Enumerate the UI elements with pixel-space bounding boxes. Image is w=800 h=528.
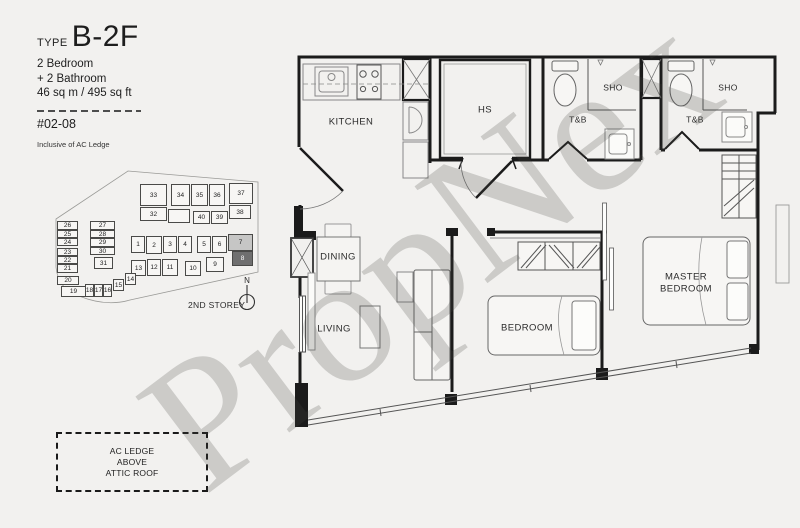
- keyplan-unit-18: 18: [85, 284, 94, 297]
- keyplan-unit-2: 2: [146, 236, 162, 254]
- floorplan-page: TYPE B-2F 2 Bedroom + 2 Bathroom 46 sq m…: [0, 0, 800, 528]
- room-label-dining: DINING: [320, 251, 356, 263]
- keyplan-unit-27: 27: [90, 221, 115, 230]
- ac-ledge-line: AC LEDGE: [110, 446, 155, 457]
- keyplan-unit-24: 24: [57, 238, 78, 246]
- keyplan-unit-9: 9: [206, 257, 224, 272]
- keyplan-unit-30: 30: [90, 247, 115, 255]
- pillow: [727, 283, 748, 320]
- ac-ledge-line: ATTIC ROOF: [106, 468, 159, 479]
- storey-label: 2ND STOREY: [188, 300, 245, 310]
- toilet-icon: [552, 61, 578, 71]
- keyplan-unit-19: 19: [61, 286, 86, 297]
- keyplan-unit-20: 20: [57, 276, 79, 285]
- keyplan-unit-12: 12: [147, 259, 161, 276]
- keyplan-unit-38: 38: [229, 205, 251, 219]
- room-label-sho: SHO: [718, 82, 738, 94]
- room-label-living: LIVING: [317, 323, 351, 335]
- keyplan-unit-4: 4: [178, 236, 192, 253]
- cabinet-icon: [403, 142, 428, 178]
- keyplan-unit-15: 15: [113, 279, 124, 291]
- keyplan-unit-31: 31: [94, 257, 113, 269]
- wardrobe-icon: [518, 242, 600, 270]
- keyplan-unit-23: 23: [57, 248, 78, 256]
- pillow: [572, 301, 596, 350]
- keyplan-unit-33: 33: [140, 184, 167, 206]
- keyplan-unit-11: 11: [162, 259, 178, 276]
- sliding-door-panel: [610, 248, 614, 310]
- keyplan-unit-34: 34: [171, 184, 190, 206]
- keyplan-unit-37: 37: [229, 183, 253, 204]
- doors: [300, 132, 699, 209]
- keyplan-unit-25: 25: [57, 230, 78, 238]
- keyplan-unit-16: 16: [103, 284, 112, 297]
- keyplan-unit-35: 35: [191, 184, 208, 206]
- service-shafts: [403, 59, 661, 100]
- wardrobe-icon: [722, 155, 756, 218]
- keyplan-unit-39: 39: [211, 211, 228, 224]
- keyplan-unit-32: 32: [140, 207, 167, 221]
- north-label: N: [244, 276, 250, 285]
- room-label-t-b: T&B: [569, 114, 587, 126]
- keyplan-unit-8: 8: [232, 251, 253, 266]
- sofa: [414, 270, 450, 380]
- living-dining-furniture: [291, 224, 450, 380]
- side-table: [397, 272, 413, 302]
- sliding-door-panel: [603, 203, 607, 280]
- coffee-table: [360, 306, 380, 348]
- stove-icon: [357, 65, 381, 99]
- keyplan-unit-21: 21: [57, 264, 78, 273]
- master-bedroom-furniture: [603, 155, 757, 325]
- room-label-bedroom: BEDROOM: [501, 322, 553, 334]
- keyplan-unit-17: 17: [94, 284, 103, 297]
- keyplan-unit-36: 36: [209, 184, 225, 206]
- ac-ledge-line: ABOVE: [117, 457, 147, 468]
- toilet-icon: [668, 61, 694, 71]
- bedroom-furniture: [488, 238, 600, 355]
- keyplan-unit-1: 1: [131, 236, 145, 253]
- room-label-hs: HS: [478, 104, 492, 116]
- tv-console: [308, 273, 315, 350]
- keyplan-unit-22: 22: [57, 256, 78, 264]
- keyplan-unit-14: 14: [125, 273, 136, 285]
- room-label-t-b: T&B: [686, 114, 704, 126]
- pillow: [727, 241, 748, 278]
- keyplan-unit-29: 29: [90, 238, 115, 247]
- room-label-sho: SHO: [603, 82, 623, 94]
- dining-chair: [325, 224, 351, 237]
- dining-chair: [325, 281, 351, 294]
- keyplan-unit-3: 3: [163, 236, 177, 253]
- keyplan-unit-26: 26: [57, 221, 78, 230]
- ac-ledge-strip: [776, 205, 789, 283]
- keyplan-unit-10: 10: [185, 261, 201, 276]
- keyplan-unit-40: 40: [193, 211, 210, 224]
- keyplan-unit-6: 6: [212, 236, 227, 253]
- room-label-master-bedroom: MASTER BEDROOM: [660, 272, 712, 295]
- keyplan-unit-7: 7: [228, 234, 253, 251]
- keyplan-unit-5: 5: [197, 236, 211, 253]
- room-label-kitchen: KITCHEN: [329, 116, 374, 128]
- bathroom-fixtures: [552, 59, 752, 159]
- washer-icon: [403, 102, 428, 140]
- keyplan-unit-28: 28: [90, 230, 115, 238]
- ac-ledge-note-box: AC LEDGE ABOVE ATTIC ROOF: [56, 432, 208, 492]
- keyplan-unit: [168, 209, 190, 223]
